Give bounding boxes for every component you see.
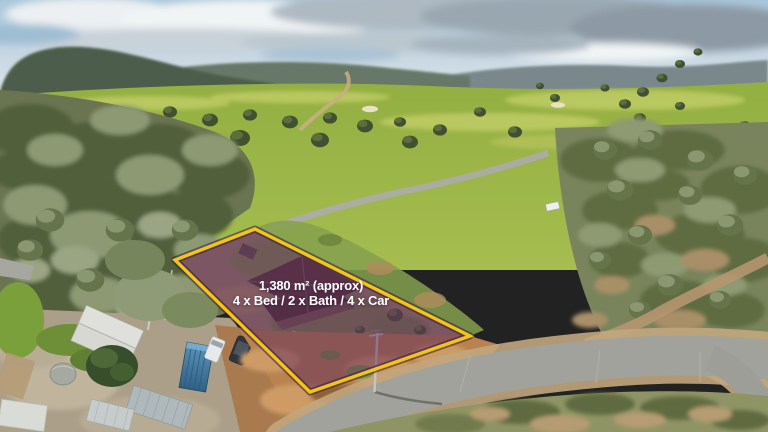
lot-area-label: 1,380 m² (approx) xyxy=(233,279,389,294)
dark-garden-tree xyxy=(86,345,138,387)
sand-bunker xyxy=(362,106,378,112)
lot-features-label: 4 x Bed / 2 x Bath / 4 x Car xyxy=(233,294,389,309)
gum-canopy xyxy=(105,240,165,280)
sand-bunker xyxy=(551,102,565,108)
aerial-photo: 1,380 m² (approx) 4 x Bed / 2 x Bath / 4… xyxy=(0,0,768,432)
right-bushland xyxy=(555,118,768,348)
water-tank xyxy=(50,363,76,385)
aerial-photo-canvas xyxy=(0,0,768,432)
lot-info-overlay: 1,380 m² (approx) 4 x Bed / 2 x Bath / 4… xyxy=(233,279,389,308)
